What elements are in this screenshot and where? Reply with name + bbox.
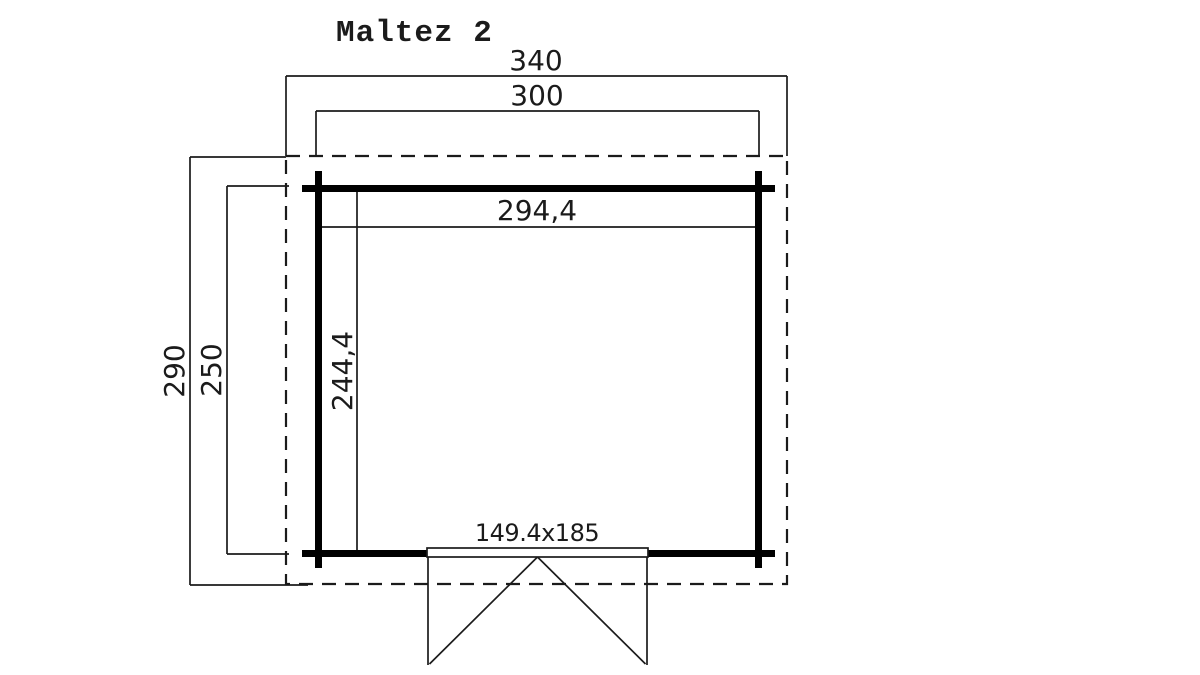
dim-overall-depth-lines (227, 186, 289, 554)
dim-label-outer-depth: 290 (158, 344, 191, 397)
dim-label-inner-width: 294,4 (497, 194, 577, 227)
drawing-title: Maltez 2 (336, 16, 493, 51)
door-swing-right (538, 557, 646, 664)
dim-label-outer-width: 340 (509, 44, 562, 77)
floor-plan-canvas: Maltez 2 340 300 294,4 290 250 244,4 149… (0, 0, 1200, 675)
floor-plan-page: Maltez 2 340 300 294,4 290 250 244,4 149… (0, 0, 1200, 675)
door-frame (427, 548, 648, 557)
dim-overall-width-lines (316, 111, 759, 156)
door-size-label: 149.4x185 (475, 519, 599, 547)
dim-label-overall-width: 300 (510, 79, 563, 112)
dim-label-overall-depth: 250 (195, 343, 228, 396)
door-symbol (427, 548, 648, 665)
labels: Maltez 2 340 300 294,4 290 250 244,4 149… (158, 16, 599, 547)
door-swing-left (430, 557, 538, 664)
dim-label-inner-depth: 244,4 (326, 331, 359, 411)
thin-lines (190, 76, 787, 585)
walls (302, 171, 775, 568)
